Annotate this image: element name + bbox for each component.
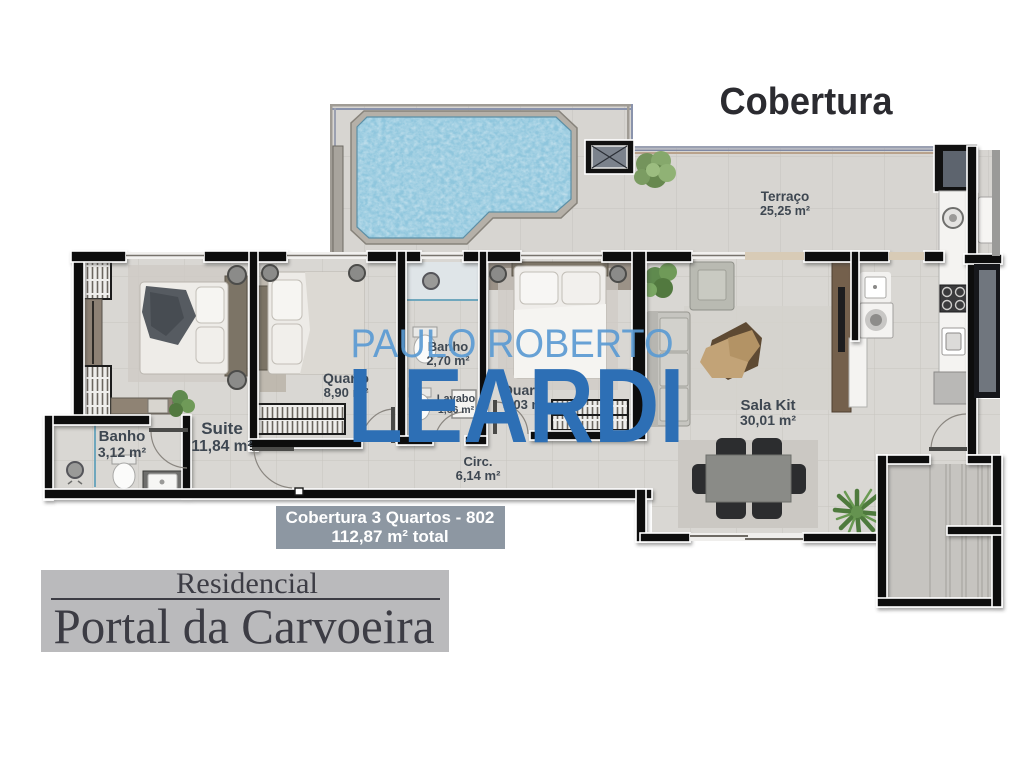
svg-text:Banho: Banho: [99, 428, 146, 445]
svg-text:25,25 m²: 25,25 m²: [760, 204, 810, 218]
svg-text:Cobertura 3 Quartos - 802: Cobertura 3 Quartos - 802: [286, 508, 495, 527]
svg-text:3,12 m²: 3,12 m²: [98, 444, 147, 460]
svg-text:Terraço: Terraço: [761, 189, 810, 204]
svg-text:Cobertura: Cobertura: [720, 81, 894, 123]
svg-text:6,14 m²: 6,14 m²: [456, 468, 501, 483]
svg-text:LEARDI: LEARDI: [348, 347, 685, 465]
svg-text:30,01 m²: 30,01 m²: [740, 412, 796, 428]
svg-text:11,84 m²: 11,84 m²: [191, 438, 252, 455]
svg-text:112,87 m² total: 112,87 m² total: [331, 527, 448, 546]
svg-text:Suite: Suite: [201, 419, 243, 438]
svg-text:Residencial: Residencial: [176, 567, 318, 600]
svg-text:Portal da Carvoeira: Portal da Carvoeira: [54, 598, 435, 654]
